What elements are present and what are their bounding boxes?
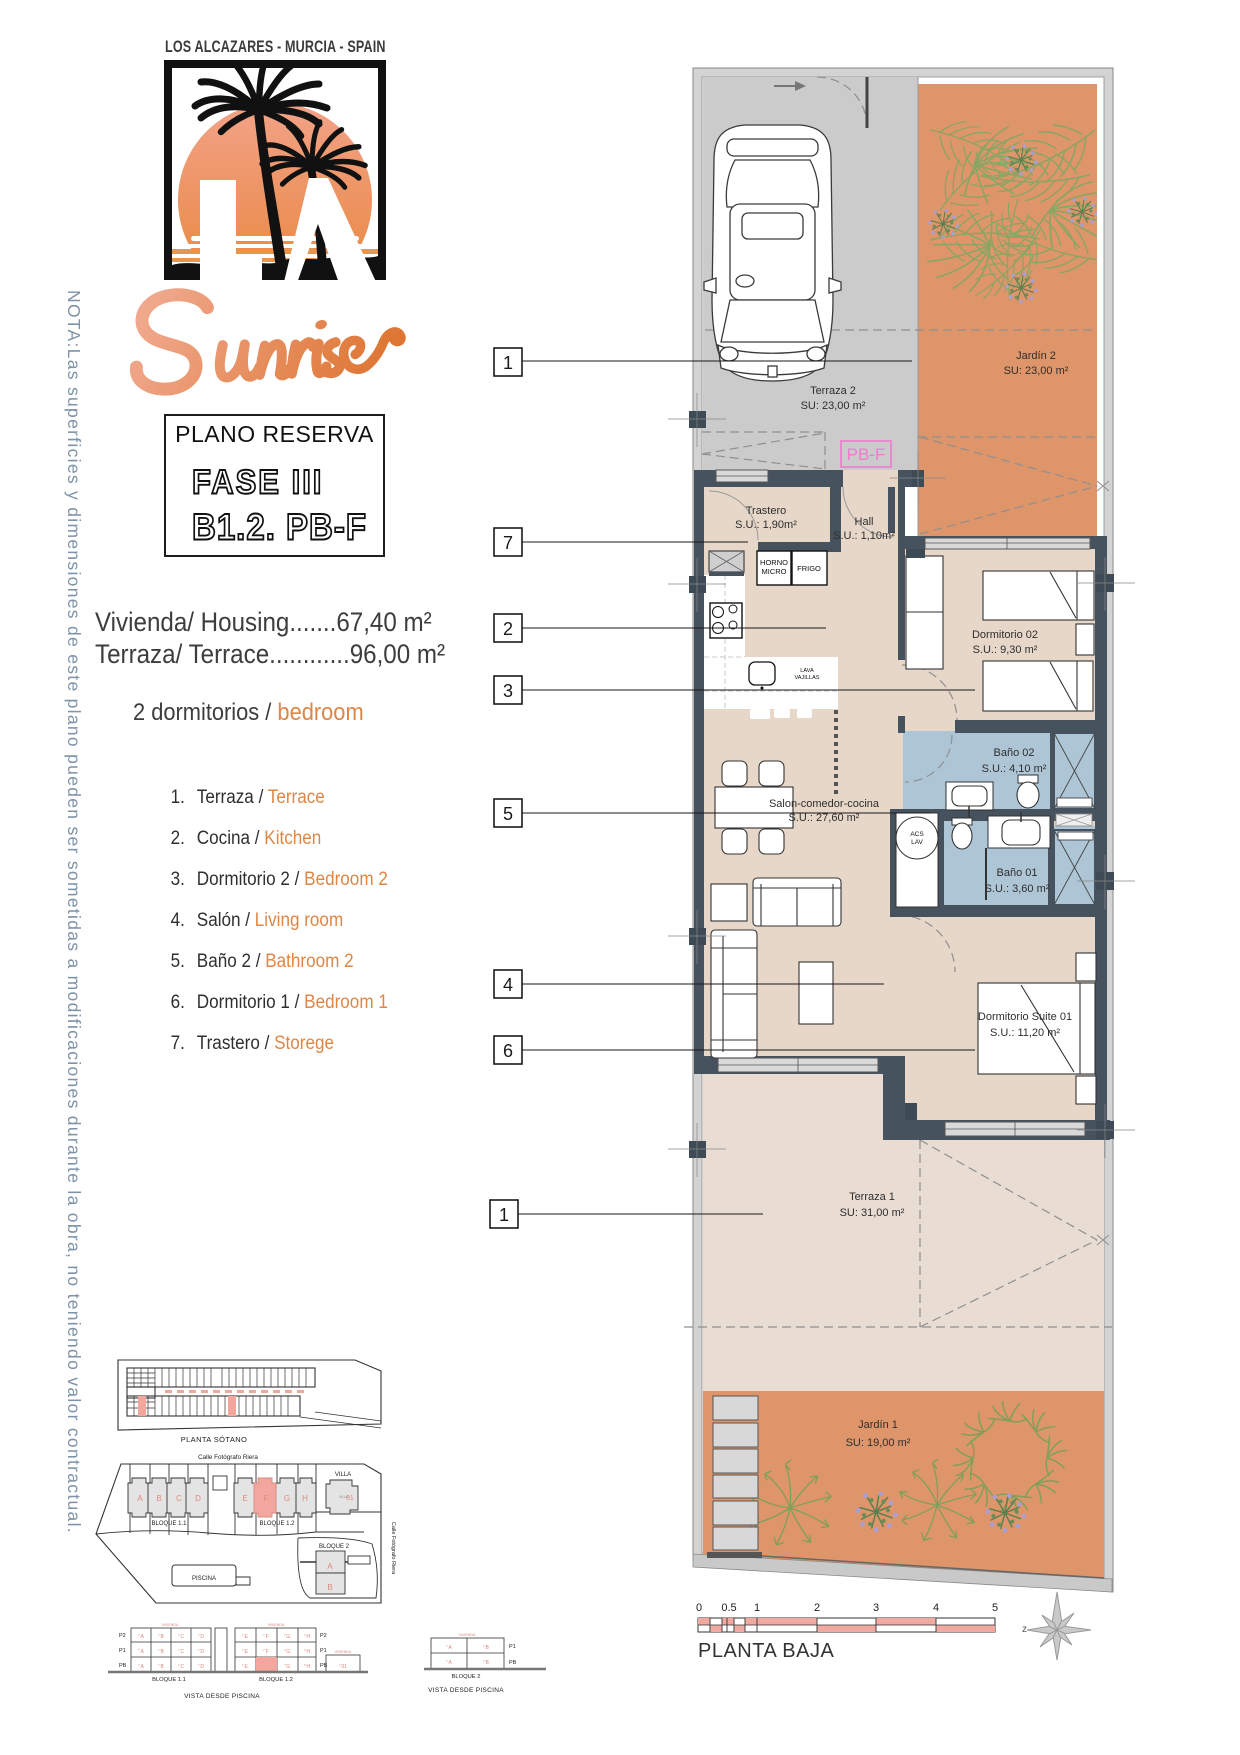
- svg-text:Jardín 2: Jardín 2: [1016, 350, 1056, 362]
- svg-text:LAVA: LAVA: [800, 668, 814, 674]
- svg-text:Terraza 1: Terraza 1: [849, 1191, 895, 1203]
- svg-text:3: 3: [503, 681, 513, 701]
- svg-text:MICRO: MICRO: [762, 567, 787, 576]
- svg-text:HORNO: HORNO: [760, 558, 788, 567]
- svg-text:5: 5: [992, 1602, 998, 1614]
- svg-text:SU: 31,00 m²: SU: 31,00 m²: [840, 1207, 905, 1219]
- svg-text:1: 1: [499, 1205, 509, 1225]
- svg-text:2: 2: [503, 619, 513, 639]
- svg-text:Terraza 2: Terraza 2: [810, 385, 856, 397]
- svg-text:FRIGO: FRIGO: [797, 564, 821, 573]
- svg-text:SU: 23,00 m²: SU: 23,00 m²: [1004, 365, 1069, 377]
- svg-text:SU: 23,00 m²: SU: 23,00 m²: [801, 400, 866, 412]
- svg-text:S.U.: 1,10m²: S.U.: 1,10m²: [833, 530, 895, 542]
- svg-text:Hall: Hall: [855, 516, 874, 528]
- svg-text:2: 2: [814, 1602, 820, 1614]
- svg-text:7: 7: [503, 533, 513, 553]
- svg-text:Baño 02: Baño 02: [994, 747, 1035, 759]
- svg-text:Salon-comedor-cocina: Salon-comedor-cocina: [769, 798, 880, 810]
- svg-text:ACS: ACS: [910, 831, 924, 838]
- svg-text:1: 1: [503, 353, 513, 373]
- svg-text:Baño 01: Baño 01: [997, 867, 1038, 879]
- svg-text:0: 0: [696, 1602, 702, 1614]
- svg-text:0.5: 0.5: [721, 1602, 736, 1614]
- svg-text:4: 4: [503, 975, 513, 995]
- svg-text:1: 1: [754, 1602, 760, 1614]
- svg-text:LAV: LAV: [911, 839, 923, 846]
- svg-text:VAJILLAS: VAJILLAS: [794, 675, 819, 681]
- svg-text:Trastero: Trastero: [746, 505, 787, 517]
- svg-text:Dormitorio Suite 01: Dormitorio Suite 01: [978, 1011, 1072, 1023]
- svg-text:SU: 19,00 m²: SU: 19,00 m²: [846, 1437, 911, 1449]
- svg-text:z: z: [1022, 1624, 1027, 1635]
- svg-text:PB-F: PB-F: [847, 445, 886, 464]
- svg-text:S.U.: 9,30 m²: S.U.: 9,30 m²: [973, 644, 1038, 656]
- svg-text:Jardín 1: Jardín 1: [858, 1419, 898, 1431]
- svg-text:6: 6: [503, 1041, 513, 1061]
- svg-text:S.U.: 3,60 m²: S.U.: 3,60 m²: [985, 883, 1050, 895]
- svg-text:Dormitorio 02: Dormitorio 02: [972, 629, 1038, 641]
- svg-text:3: 3: [873, 1602, 879, 1614]
- svg-text:S.U.: 4,10 m²: S.U.: 4,10 m²: [982, 763, 1047, 775]
- svg-text:S.U.: 11,20 m²: S.U.: 11,20 m²: [990, 1027, 1060, 1039]
- svg-text:5: 5: [503, 804, 513, 824]
- svg-text:S.U.: 1,90m²: S.U.: 1,90m²: [735, 519, 797, 531]
- svg-text:PLANTA BAJA: PLANTA BAJA: [698, 1640, 834, 1662]
- svg-text:S.U.: 27,60 m²: S.U.: 27,60 m²: [789, 812, 860, 824]
- svg-text:4: 4: [933, 1602, 939, 1614]
